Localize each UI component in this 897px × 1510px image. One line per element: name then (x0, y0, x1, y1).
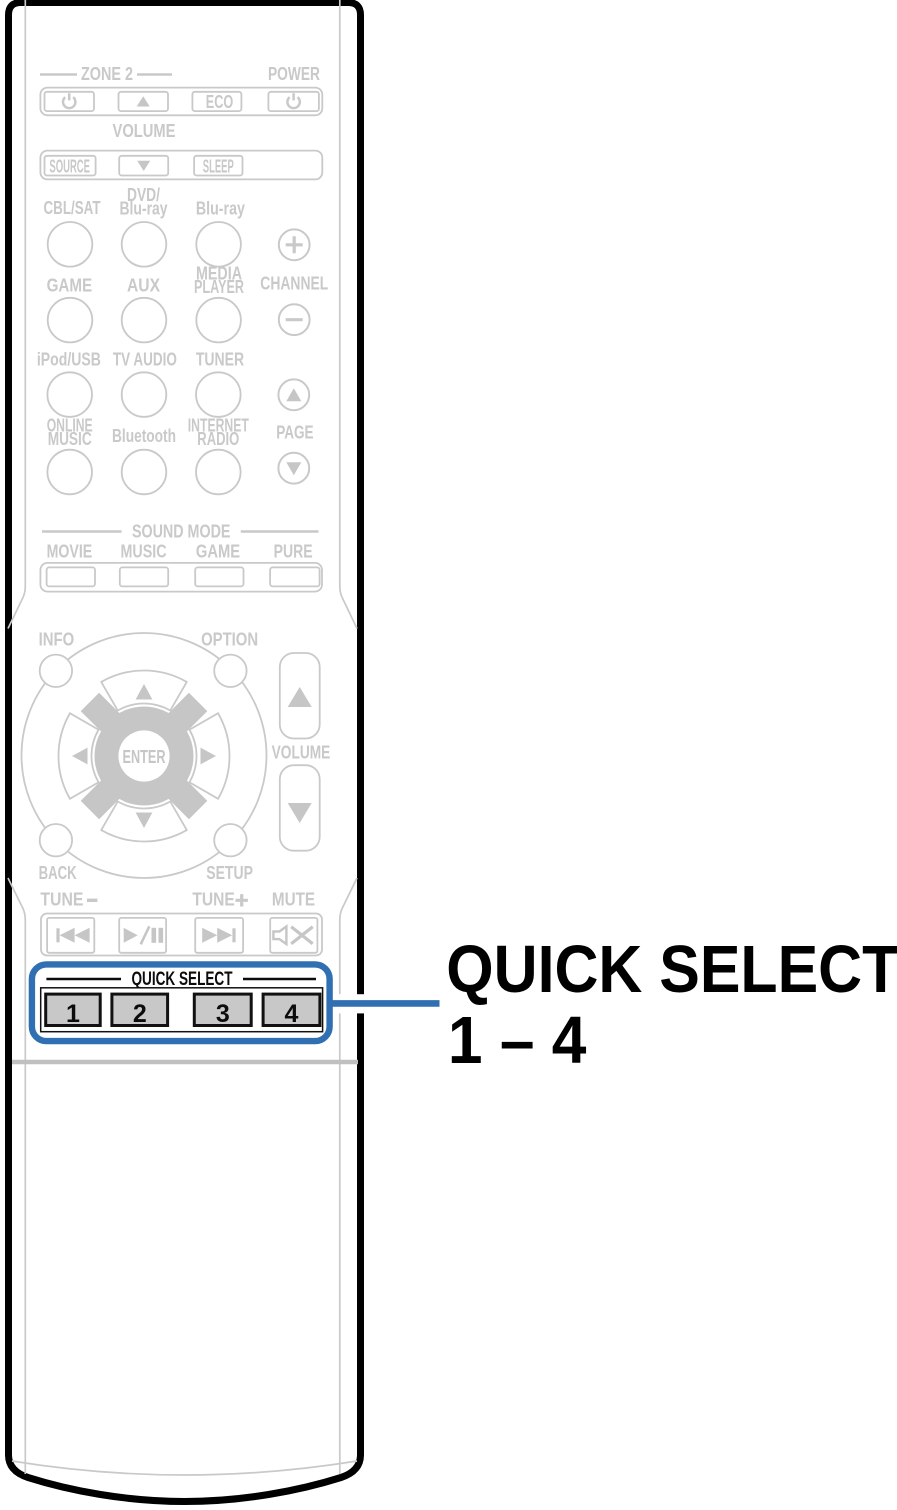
svg-text:CHANNEL: CHANNEL (260, 274, 328, 294)
svg-text:2: 2 (133, 1000, 147, 1028)
svg-text:ENTER: ENTER (123, 747, 166, 767)
svg-text:GAME: GAME (196, 542, 240, 562)
svg-text:4: 4 (285, 1000, 299, 1028)
svg-text:ECO: ECO (206, 92, 234, 112)
svg-text:MUSIC: MUSIC (48, 429, 92, 449)
svg-text:1: 1 (66, 1000, 80, 1028)
svg-text:3: 3 (216, 1000, 230, 1028)
svg-text:VOLUME: VOLUME (272, 743, 331, 763)
svg-text:TV AUDIO: TV AUDIO (113, 350, 177, 370)
svg-text:INFO: INFO (39, 630, 75, 650)
svg-text:OPTION: OPTION (201, 630, 258, 650)
svg-text:1 – 4: 1 – 4 (448, 1004, 587, 1078)
svg-text:QUICK SELECT: QUICK SELECT (132, 968, 233, 990)
svg-text:CBL/SAT: CBL/SAT (44, 198, 101, 218)
svg-text:SLEEP: SLEEP (203, 156, 234, 176)
svg-text:PAGE: PAGE (276, 423, 313, 443)
svg-text:MUTE: MUTE (272, 890, 315, 910)
svg-text:TUNE: TUNE (40, 890, 83, 910)
svg-text:iPod/USB: iPod/USB (37, 350, 101, 370)
svg-text:PLAYER: PLAYER (194, 277, 244, 297)
svg-text:SOURCE: SOURCE (49, 156, 90, 176)
svg-text:POWER: POWER (268, 64, 320, 84)
svg-text:TUNE: TUNE (192, 890, 234, 910)
svg-text:MOVIE: MOVIE (47, 542, 93, 562)
svg-text:TUNER: TUNER (196, 350, 244, 370)
svg-text:ZONE 2: ZONE 2 (81, 64, 133, 84)
svg-text:RADIO: RADIO (197, 429, 239, 449)
svg-text:AUX: AUX (127, 276, 160, 296)
svg-text:Bluetooth: Bluetooth (112, 426, 176, 446)
svg-text:Blu-ray: Blu-ray (196, 199, 245, 219)
svg-text:GAME: GAME (47, 276, 93, 296)
svg-text:BACK: BACK (39, 863, 77, 883)
svg-text:SOUND MODE: SOUND MODE (132, 522, 231, 542)
svg-text:QUICK SELECT: QUICK SELECT (446, 933, 897, 1007)
svg-text:PURE: PURE (274, 542, 313, 562)
svg-text:VOLUME: VOLUME (113, 121, 176, 141)
svg-text:SETUP: SETUP (206, 863, 253, 883)
svg-text:Blu-ray: Blu-ray (120, 199, 168, 219)
svg-text:MUSIC: MUSIC (121, 542, 167, 562)
